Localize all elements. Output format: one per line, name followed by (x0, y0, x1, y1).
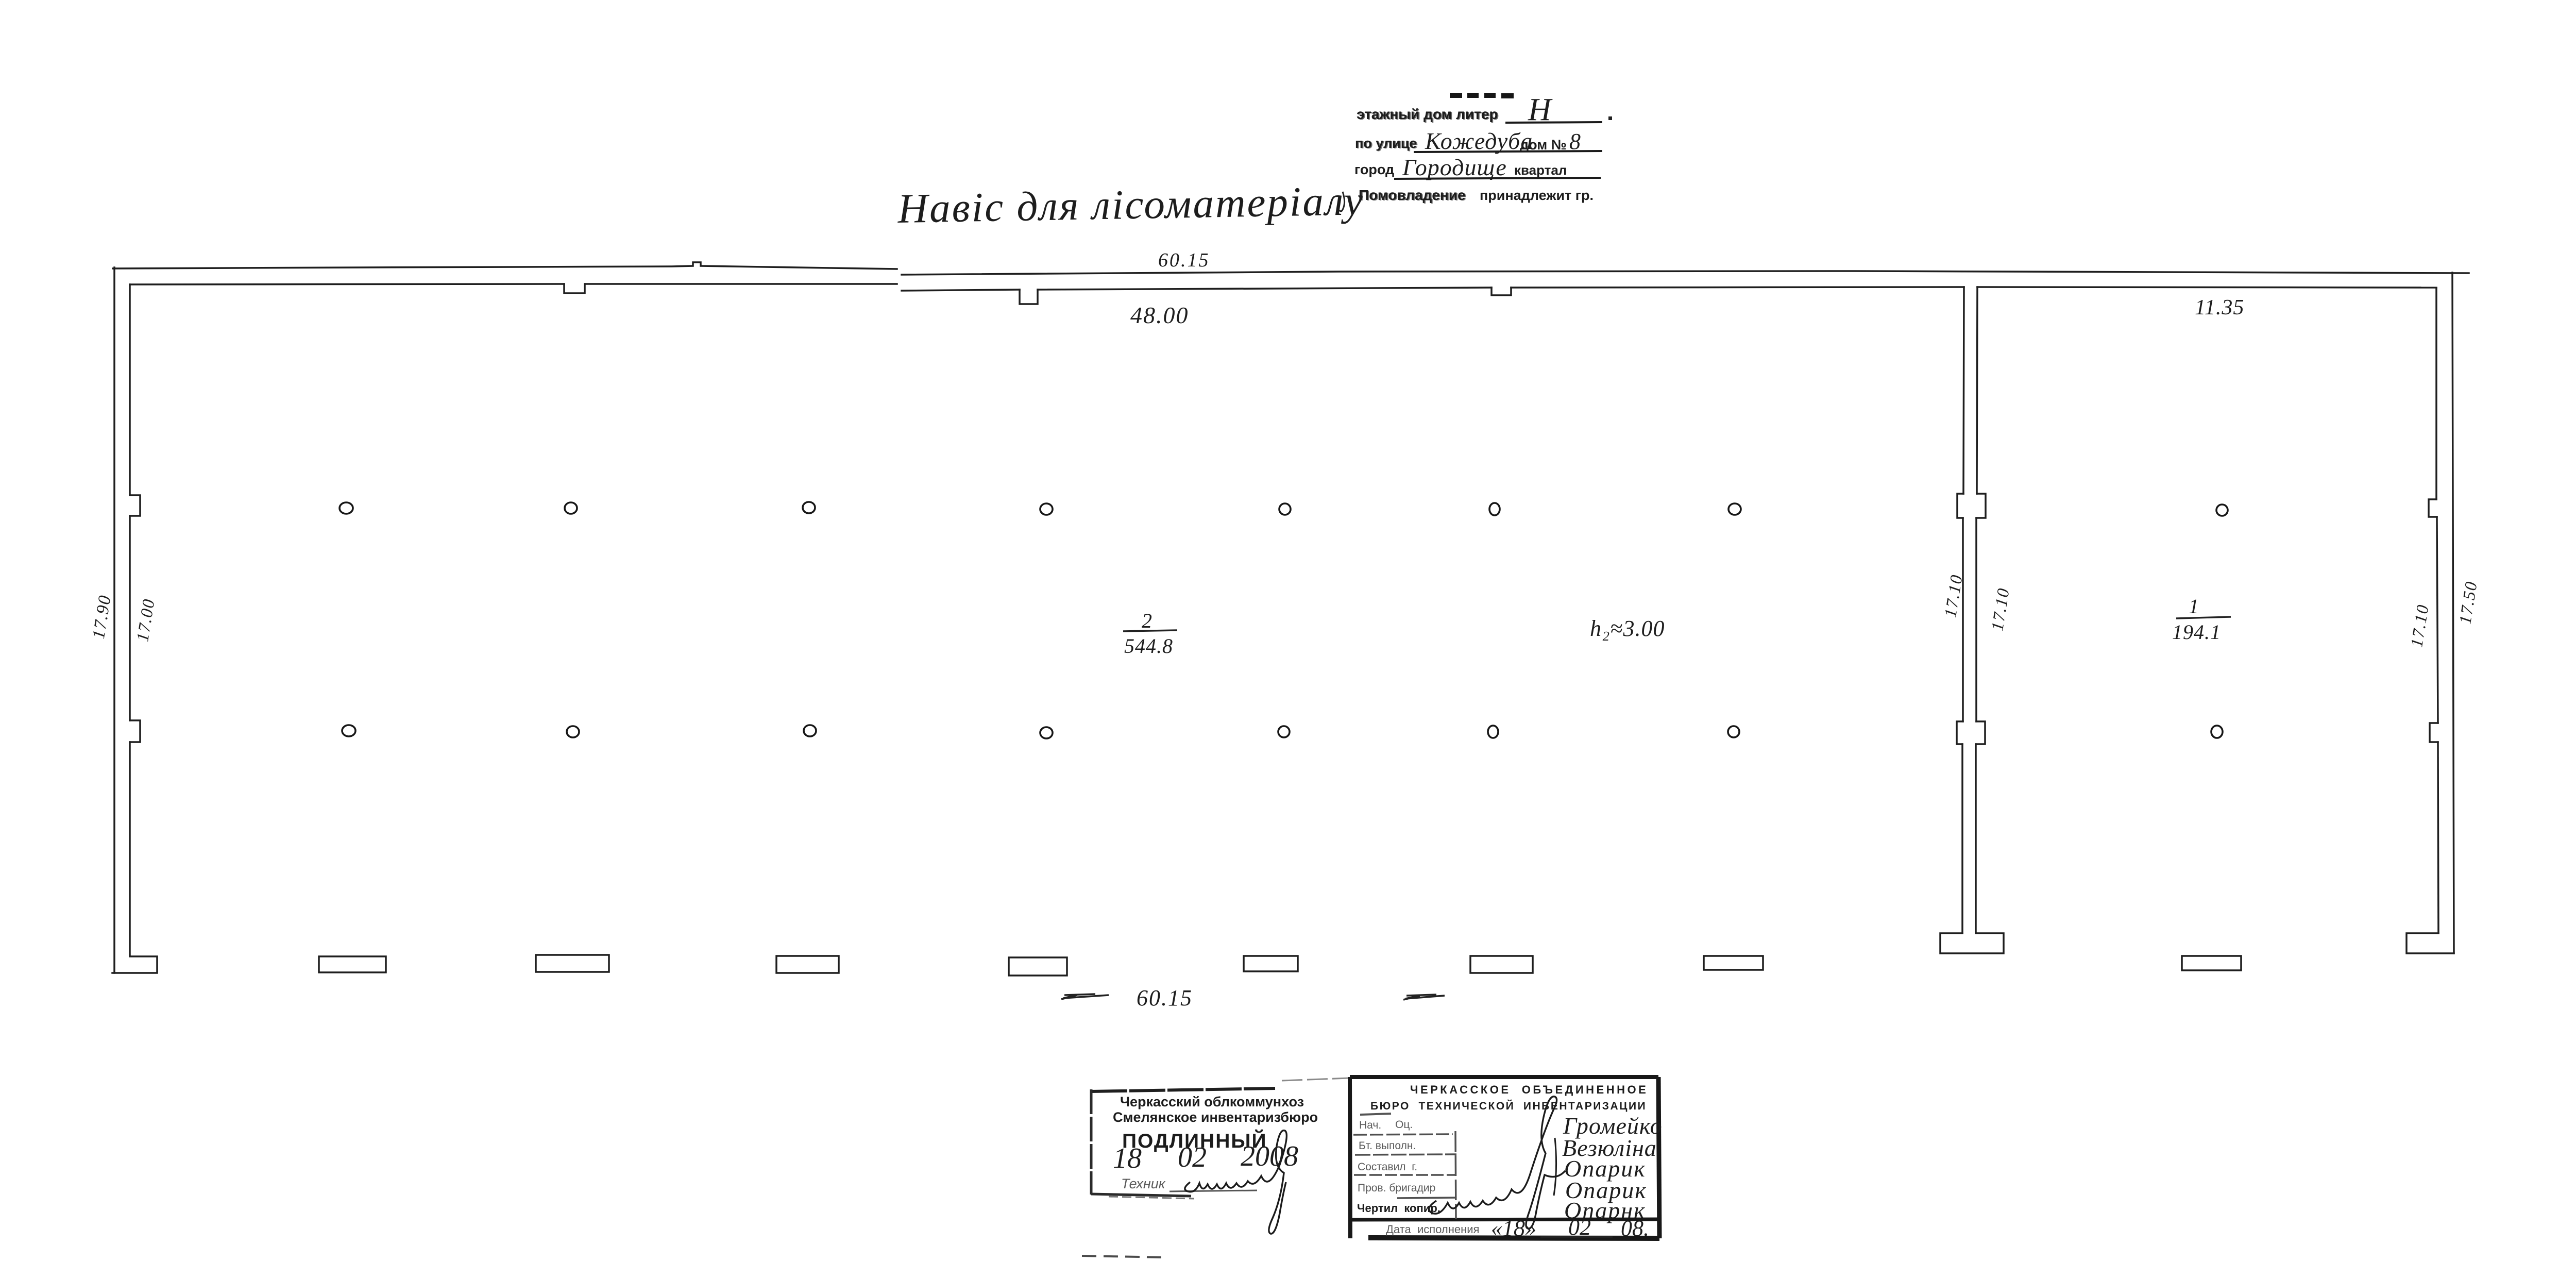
svg-text:2008: 2008 (1241, 1140, 1298, 1172)
svg-text:11.35: 11.35 (2195, 296, 2244, 320)
svg-text:Техник: Техник (1121, 1176, 1166, 1191)
svg-text:Составил г.: Составил г. (1358, 1161, 1417, 1173)
svg-text:Бт. выполн.: Бт. выполн. (1359, 1140, 1416, 1152)
svg-text:Помовладение: Помовладение (1360, 188, 1467, 204)
svg-text:Смелянское инвентаризбюро: Смелянское инвентаризбюро (1113, 1109, 1318, 1125)
svg-text:Кожедуба: Кожедуба (1425, 128, 1533, 154)
svg-text:Нач.: Нач. (1359, 1119, 1381, 1131)
svg-text:02: 02 (1178, 1141, 1207, 1173)
svg-text:Городище: Городище (1402, 154, 1507, 180)
svg-text:город: город (1354, 162, 1394, 177)
svg-text:Черкасский облкоммунхоз: Черкасский облкоммунхоз (1120, 1094, 1304, 1109)
svg-text:08.: 08. (1621, 1216, 1649, 1241)
svg-text:Пров. бригадир: Пров. бригадир (1358, 1182, 1435, 1194)
svg-text:БЮРО ТЕХНИЧЕСКОЙ ИНВЕНТАРИЗА: БЮРО ТЕХНИЧЕСКОЙ ИНВЕНТАРИЗАЦИИ (1370, 1100, 1647, 1112)
svg-text:ЧЕРКАССКОЕ ОБЪЕДИНЕННОЕ: ЧЕРКАССКОЕ ОБЪЕДИНЕННОЕ (1410, 1083, 1648, 1096)
svg-text:194.1: 194.1 (2172, 620, 2221, 644)
svg-text:18: 18 (1113, 1142, 1142, 1174)
svg-text:по улице: по улице (1356, 136, 1418, 152)
svg-text:48.00: 48.00 (1130, 302, 1189, 328)
svg-text:квартал: квартал (1514, 162, 1567, 178)
svg-text:принадлежит гр.: принадлежит гр. (1480, 188, 1594, 203)
svg-text:Навіс для лісоматеріалу: Навіс для лісоматеріалу (897, 177, 1365, 232)
svg-text:60.15: 60.15 (1158, 249, 1210, 271)
svg-text:544.8: 544.8 (1124, 634, 1173, 658)
svg-text:1: 1 (2189, 595, 2199, 618)
svg-text:Дата исполнения: Дата исполнения (1386, 1223, 1479, 1236)
svg-text:Чертил копир.: Чертил копир. (1357, 1202, 1440, 1215)
svg-text:h₂≈3.00: h₂≈3.00 (1590, 616, 1665, 641)
svg-text:этажный дом литер: этажный дом литер (1358, 107, 1499, 123)
svg-text:2: 2 (1142, 609, 1152, 632)
svg-text:Оц.: Оц. (1395, 1119, 1413, 1131)
svg-text:60.15: 60.15 (1137, 985, 1193, 1011)
